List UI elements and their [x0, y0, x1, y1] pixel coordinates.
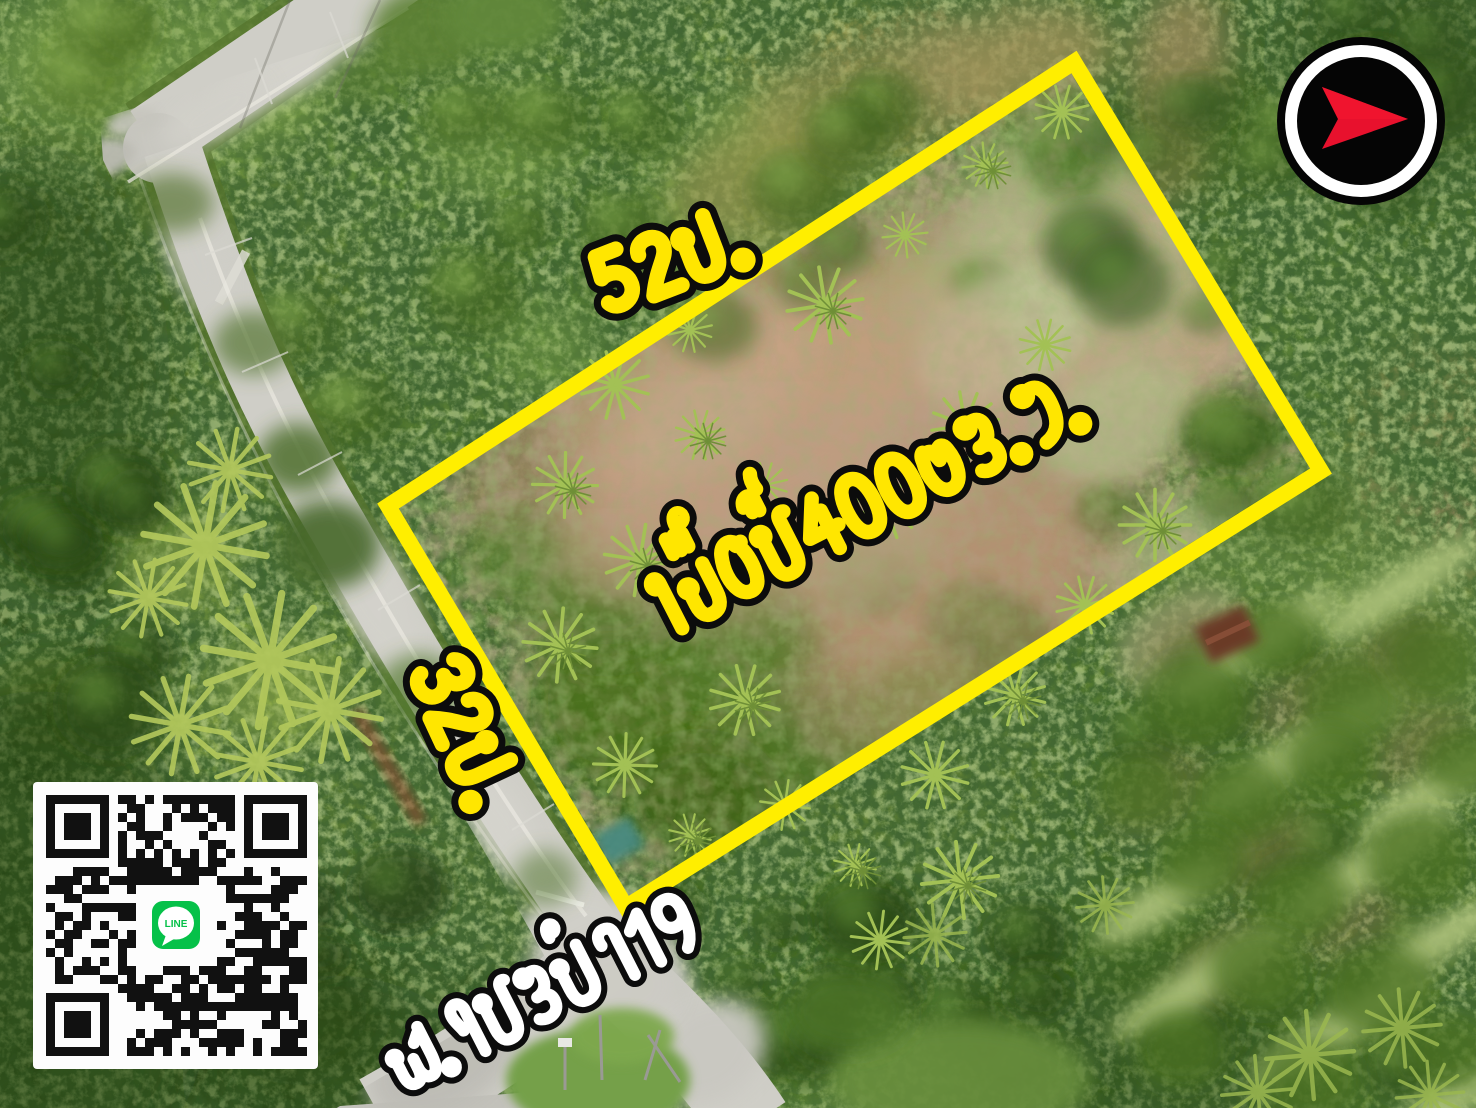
svg-text:LINE: LINE	[165, 919, 188, 930]
